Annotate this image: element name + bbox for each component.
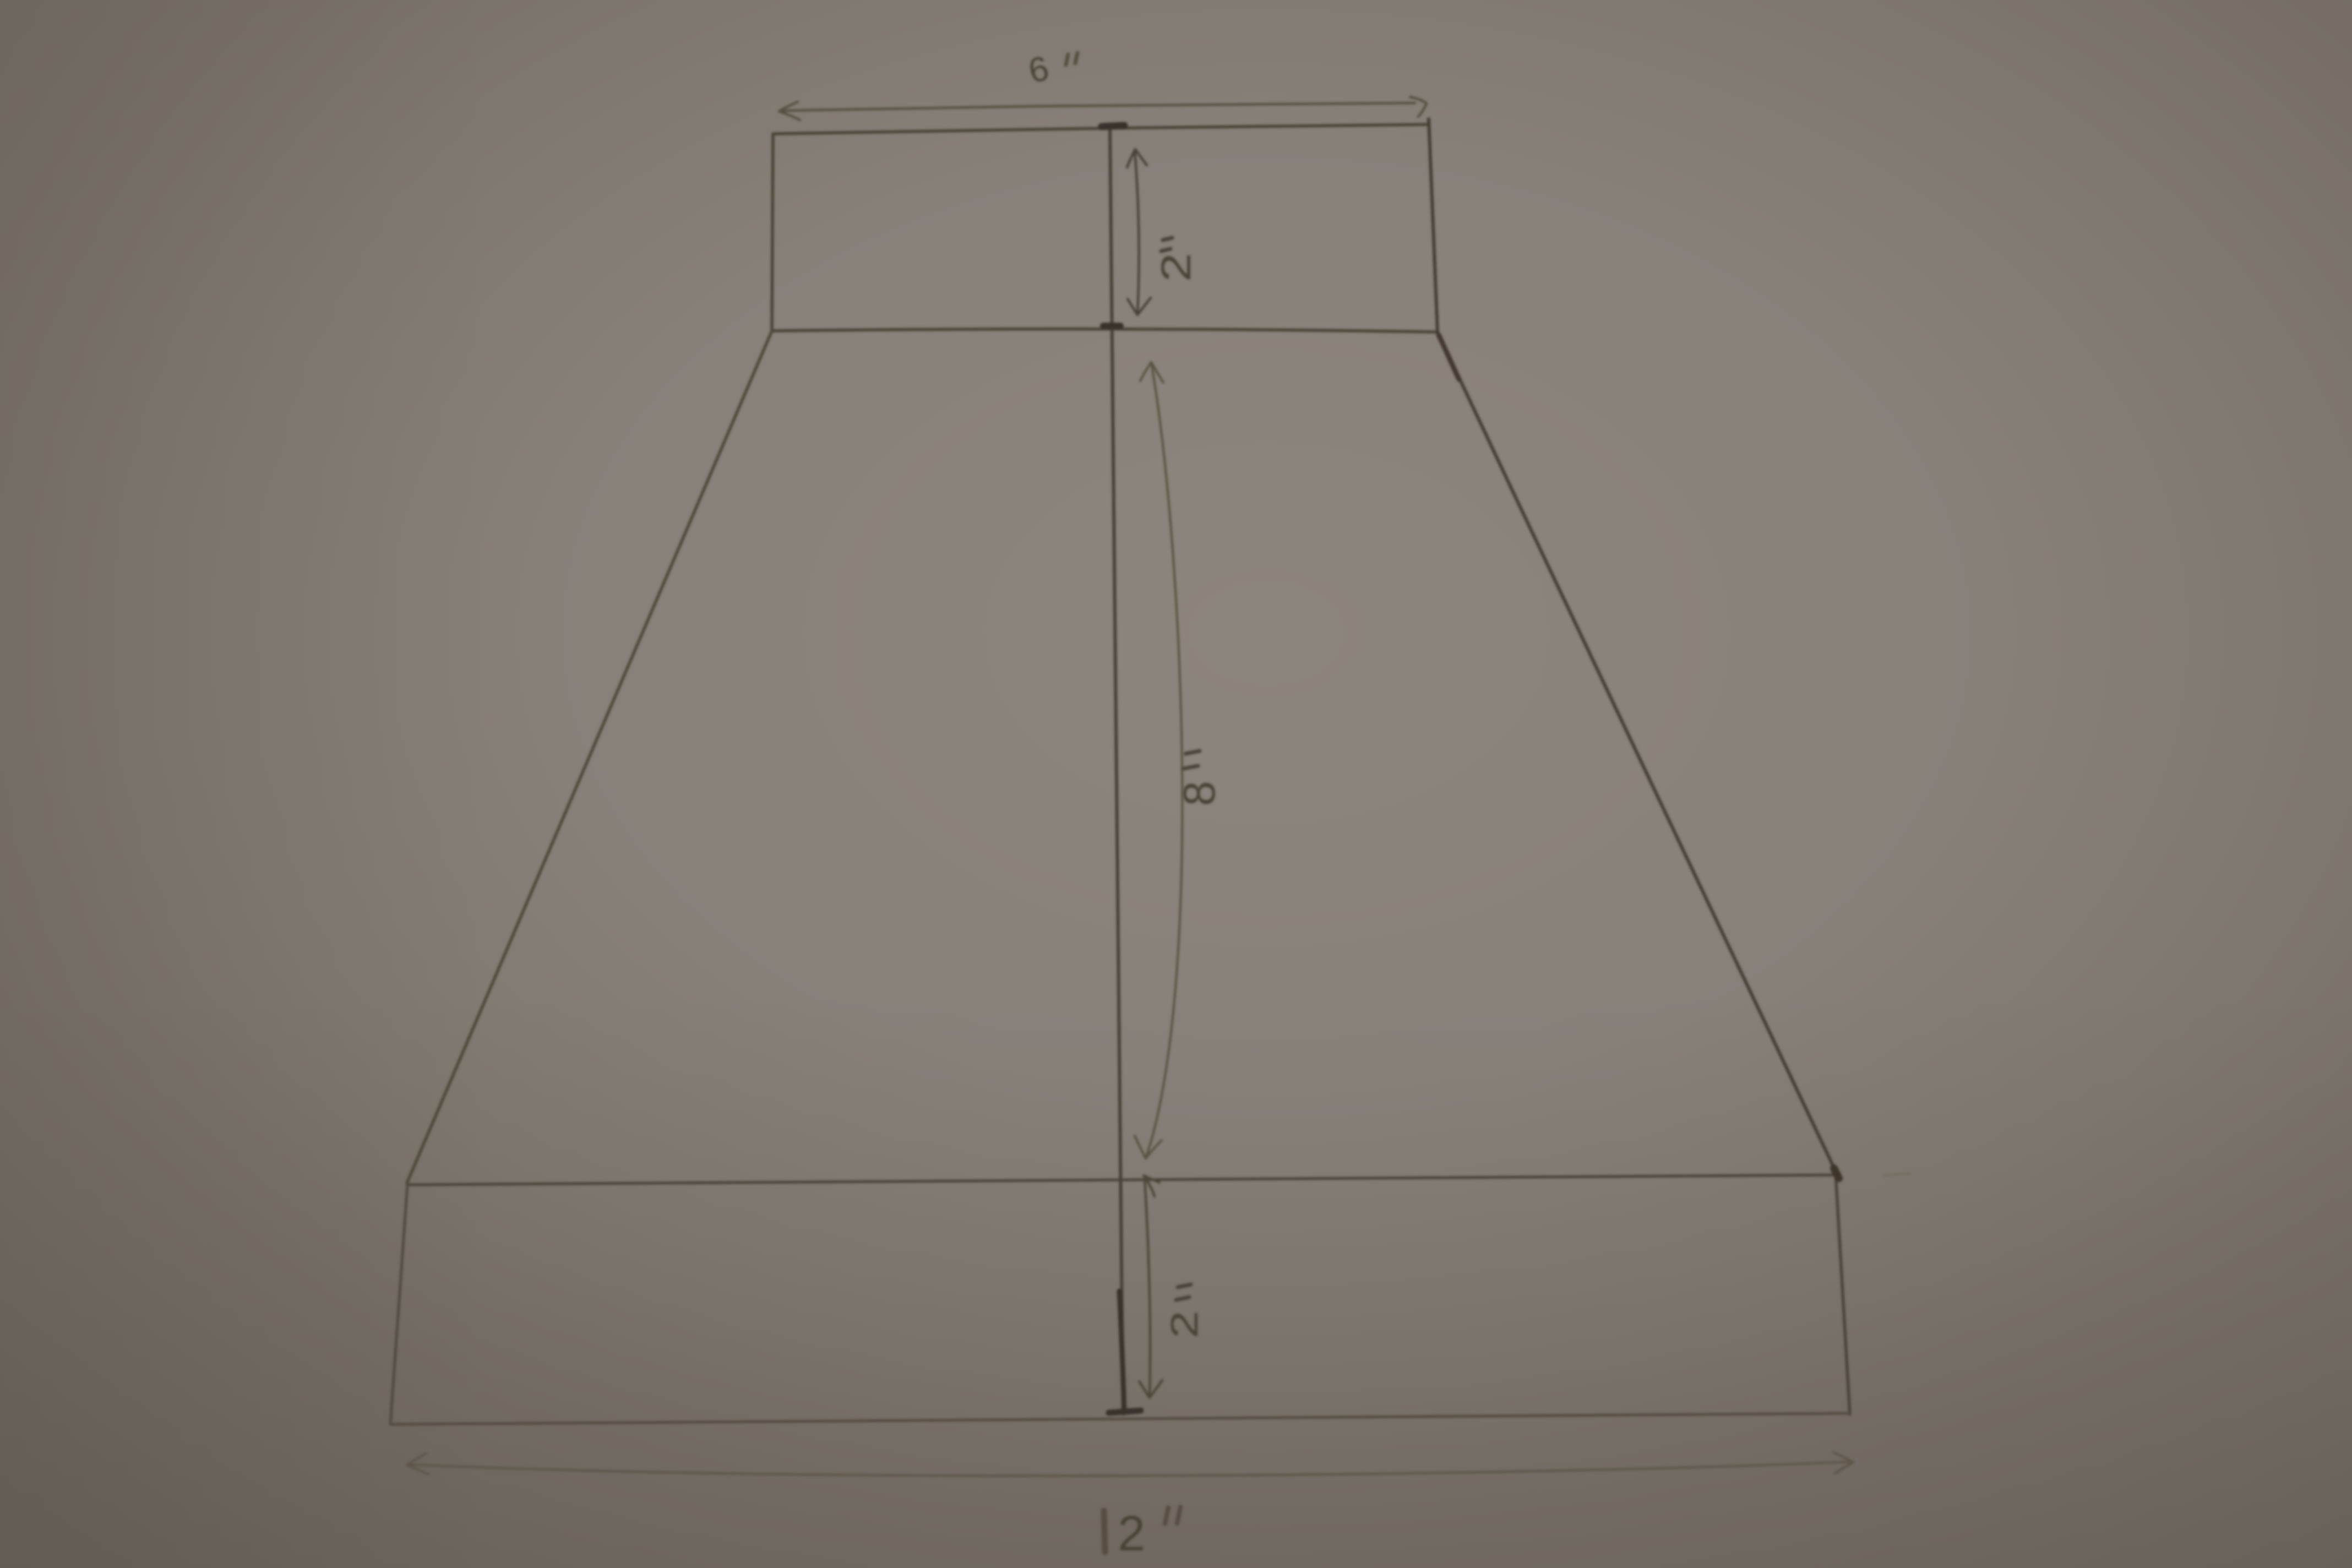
svg-text:2: 2 [1118,1506,1145,1561]
svg-text:2: 2 [1153,253,1200,282]
svg-text:8: 8 [1174,781,1224,806]
svg-text:6: 6 [1025,49,1053,91]
svg-text:2: 2 [1163,1310,1206,1338]
